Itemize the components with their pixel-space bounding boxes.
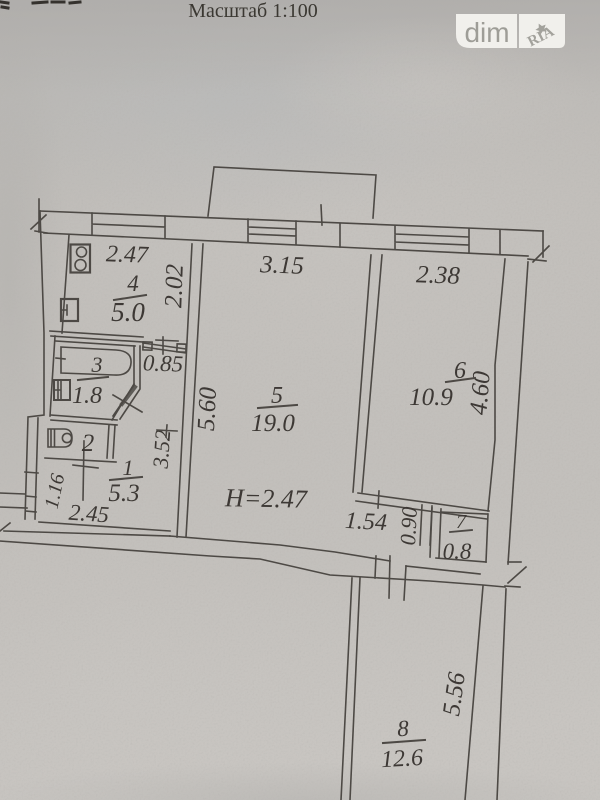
svg-text:7: 7 [456, 511, 467, 533]
svg-text:10.9: 10.9 [409, 384, 453, 411]
svg-text:3: 3 [91, 352, 103, 377]
svg-text:2: 2 [82, 430, 95, 457]
svg-text:2.45: 2.45 [68, 500, 110, 528]
svg-text:4: 4 [127, 271, 139, 296]
svg-text:12.6: 12.6 [380, 745, 423, 773]
svg-text:0.90: 0.90 [395, 506, 422, 546]
svg-text:5.3: 5.3 [108, 480, 139, 507]
svg-text:dim: dim [464, 17, 509, 48]
svg-text:19.0: 19.0 [251, 410, 295, 437]
svg-text:8: 8 [397, 716, 410, 742]
svg-text:3.52: 3.52 [148, 429, 176, 470]
svg-text:5: 5 [271, 383, 283, 409]
svg-text:3.15: 3.15 [259, 251, 305, 280]
svg-text:H=2.47: H=2.47 [224, 483, 308, 513]
svg-text:1.8: 1.8 [72, 383, 102, 409]
svg-text:2.47: 2.47 [106, 241, 150, 268]
svg-text:0.8: 0.8 [443, 539, 472, 564]
svg-text:1: 1 [123, 455, 134, 480]
svg-text:1.54: 1.54 [344, 508, 387, 536]
svg-text:2.38: 2.38 [416, 261, 461, 290]
svg-text:5.0: 5.0 [111, 297, 145, 327]
svg-text:2.02: 2.02 [160, 264, 189, 309]
svg-text:5.60: 5.60 [193, 386, 222, 432]
svg-text:Масштаб 1:100: Масштаб 1:100 [188, 0, 318, 22]
svg-text:4.60: 4.60 [465, 370, 496, 416]
